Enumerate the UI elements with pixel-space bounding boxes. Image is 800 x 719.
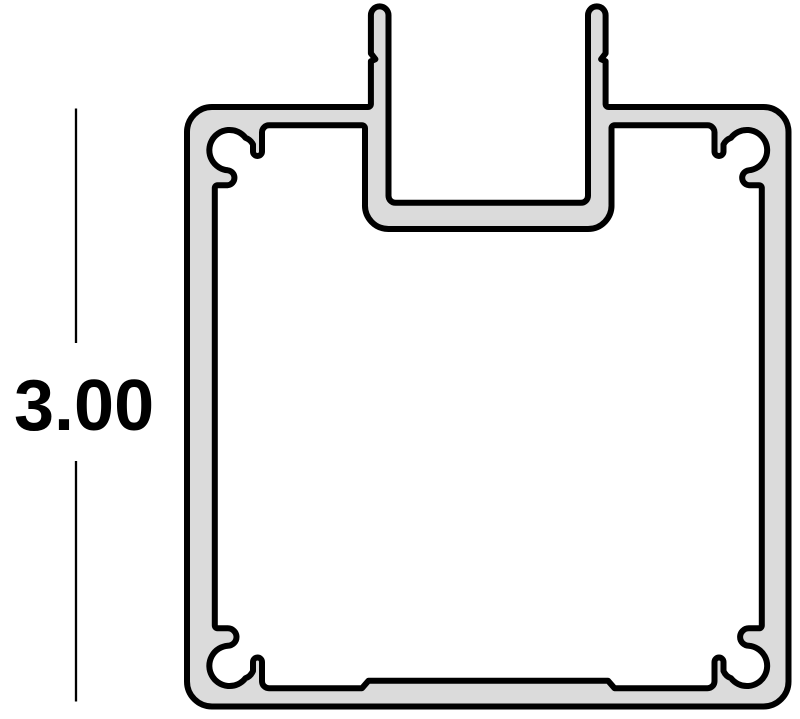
svg-text:3.00: 3.00	[14, 366, 154, 446]
